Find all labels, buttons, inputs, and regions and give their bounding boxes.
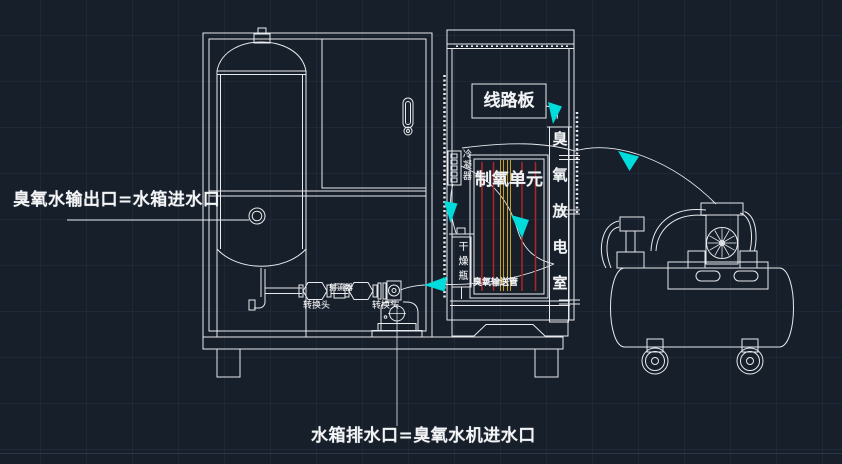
- label-oxygen-unit: 制氧单元: [470, 171, 548, 190]
- white-linework: [67, 28, 794, 426]
- air-compressor: [601, 203, 793, 374]
- arrow-condenser-dryer: [444, 201, 458, 223]
- hose-right: [740, 213, 752, 251]
- pipeline: [265, 283, 386, 300]
- label-condenser: 冷凝器: [460, 149, 470, 182]
- arrow-ozone-tube: [424, 277, 447, 292]
- label-jet-injector: 射流器: [329, 284, 353, 293]
- hose-left: [651, 209, 706, 251]
- arrow-circuit-board: [548, 102, 562, 124]
- arrow-internal-flow: [511, 215, 529, 238]
- water-tank: [217, 28, 306, 337]
- cad-canvas: 臭氧水输出口=水箱进水口 水箱排水口=臭氧水机进水口 线路板 制氧单元 臭氧放电…: [0, 0, 842, 464]
- label-discharge-chamber: 臭氧放电室: [551, 131, 568, 323]
- label-ozone-water-outlet: 臭氧水输出口=水箱进水口: [13, 191, 220, 210]
- compressor-platform: [668, 262, 768, 289]
- label-dryer-bottle: 干燥瓶: [456, 241, 467, 285]
- base-leg-left: [217, 349, 240, 377]
- door-handle: [403, 98, 413, 128]
- motor-head: [701, 203, 743, 215]
- label-tank-drain: 水箱排水口=臭氧水机进水口: [311, 427, 536, 446]
- label-adapter-right: 转换头: [372, 302, 399, 312]
- label-ozone-tube: 臭氧输送管: [473, 279, 518, 289]
- handle-top: [620, 217, 644, 231]
- label-circuit-board: 线路板: [472, 84, 546, 118]
- fan-spokes: [708, 229, 737, 258]
- drain-elbow: [254, 297, 265, 308]
- label-adapter-left: 转换头: [303, 302, 330, 312]
- adapter-fitting-left: [303, 283, 327, 300]
- pump-inlet: [387, 281, 401, 300]
- compressor-tank: [611, 268, 794, 347]
- water-machine-frame: [203, 33, 432, 337]
- water-inlet-port: [249, 208, 265, 224]
- machine-base: [203, 337, 563, 377]
- drawing-layer: [0, 0, 842, 464]
- base-leg-right: [535, 349, 558, 377]
